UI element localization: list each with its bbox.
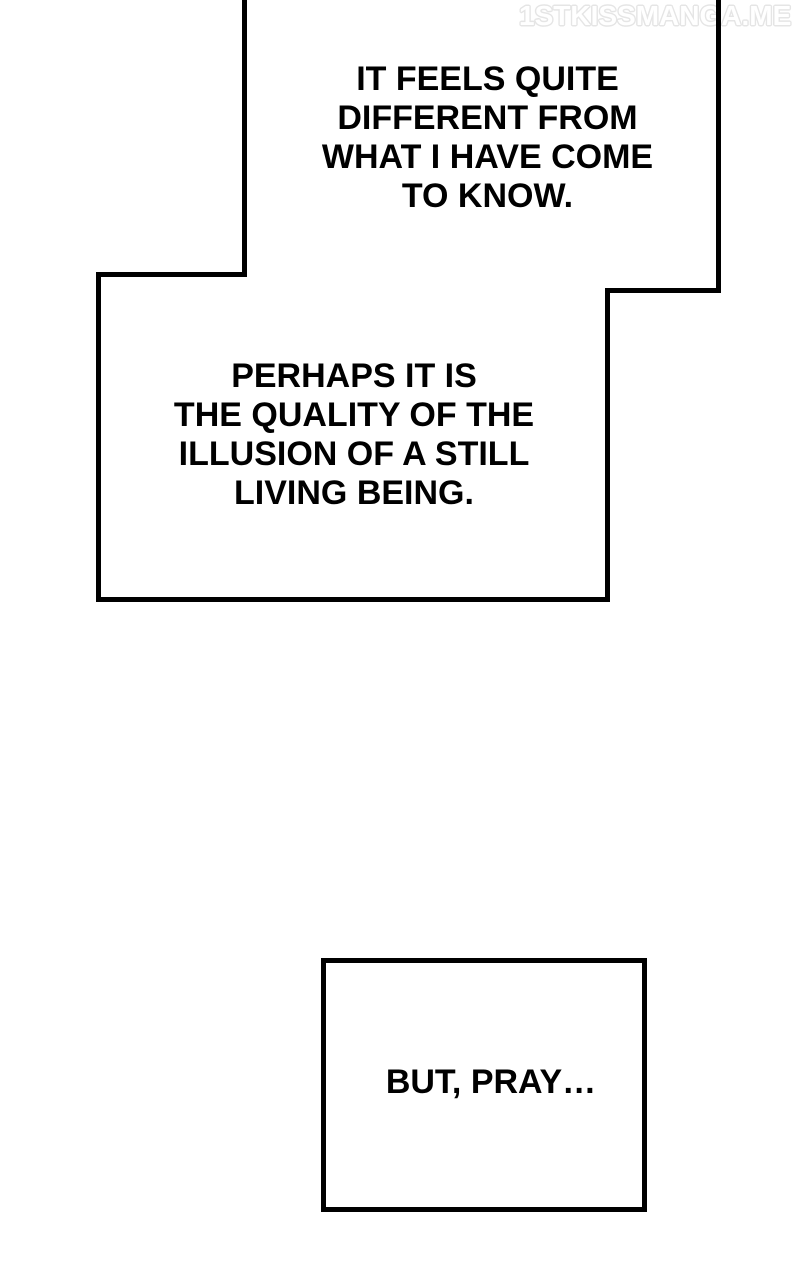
speech-line: LIVING BEING. (174, 474, 534, 513)
speech-text-bottom: BUT, PRAY… (386, 1063, 596, 1102)
panel-border-segment (716, 0, 721, 33)
speech-line: WHAT I HAVE COME (322, 138, 653, 177)
speech-line: PERHAPS IT IS (174, 357, 534, 396)
speech-line: IT FEELS QUITE (322, 60, 653, 99)
site-watermark: 1STKISSMANGA.ME (519, 0, 791, 33)
speech-line: TO KNOW. (322, 177, 653, 216)
speech-line: ILLUSION OF A STILL (174, 435, 534, 474)
speech-text-middle: PERHAPS IT IS THE QUALITY OF THE ILLUSIO… (174, 357, 534, 513)
speech-bubble-middle: PERHAPS IT IS THE QUALITY OF THE ILLUSIO… (96, 272, 610, 602)
bubble-overlap-patch (247, 270, 610, 288)
speech-line: DIFFERENT FROM (322, 99, 653, 138)
speech-bubble-top: IT FEELS QUITE DIFFERENT FROM WHAT I HAV… (242, 0, 721, 293)
manga-page: IT FEELS QUITE DIFFERENT FROM WHAT I HAV… (0, 0, 800, 1280)
speech-text-top: IT FEELS QUITE DIFFERENT FROM WHAT I HAV… (322, 60, 653, 216)
speech-bubble-bottom: BUT, PRAY… (321, 958, 647, 1212)
speech-line: THE QUALITY OF THE (174, 396, 534, 435)
speech-line: BUT, PRAY… (386, 1063, 596, 1102)
